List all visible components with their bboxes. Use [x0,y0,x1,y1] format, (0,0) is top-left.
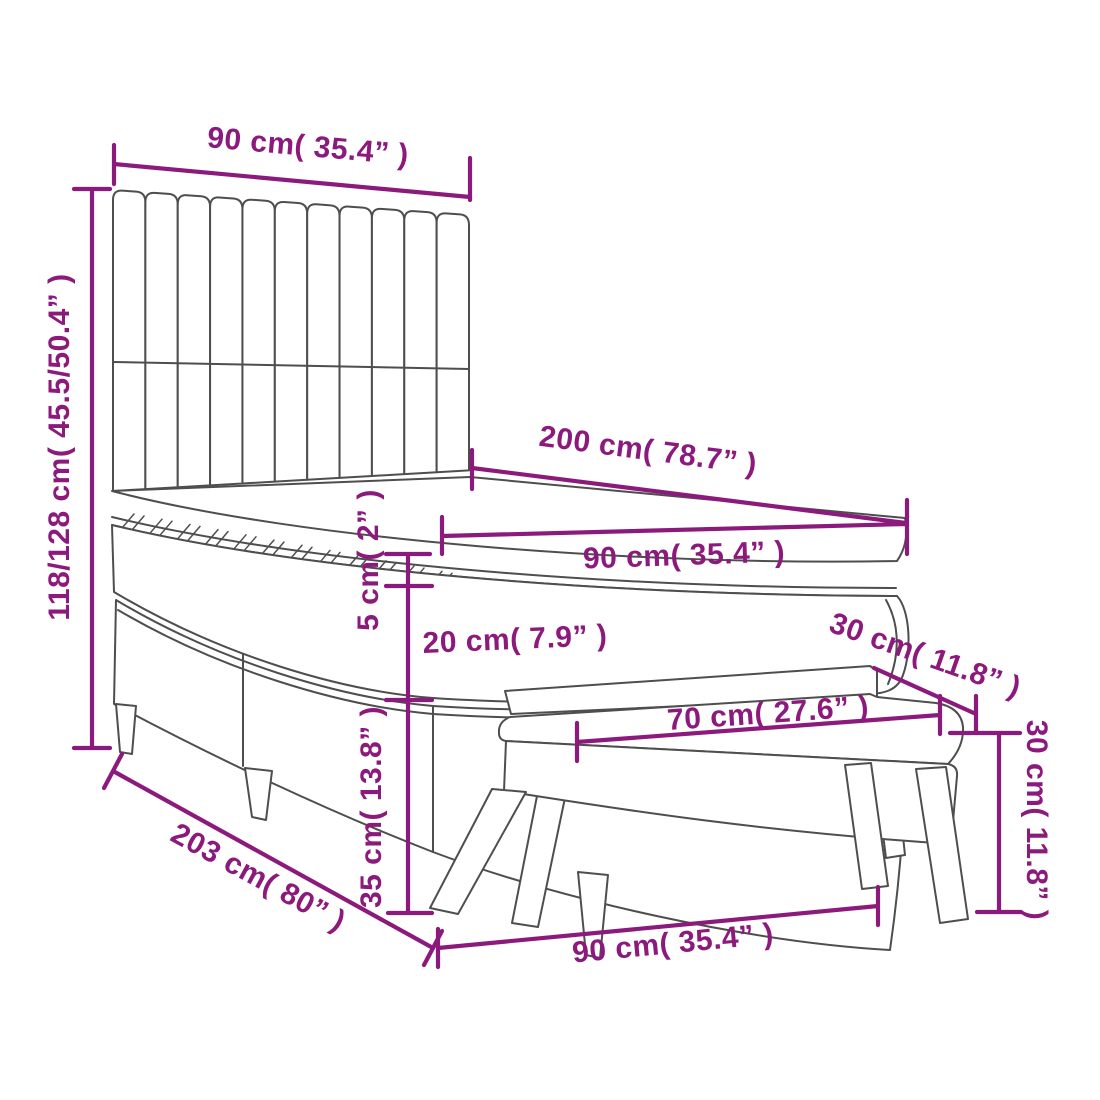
headboard-slat [404,211,436,474]
dim-label-base-height: 35 cm( 13.8” ) [355,706,389,908]
headboard-slat [210,197,242,485]
headboard-slat [340,207,372,478]
headboard-slat [372,209,404,476]
bed-leg-1 [116,704,136,754]
headboard [113,191,469,491]
headboard-slat [307,204,339,479]
dim-line-bed-height [74,189,110,748]
headboard-slat [275,202,307,482]
dim-label-mattress-width: 90 cm( 35.4” ) [582,535,785,576]
dim-label-topper-thickness: 5 cm( 2” ) [352,489,386,631]
bed-line-art [0,0,1100,1100]
headboard-slat [178,195,210,487]
headboard-slat [113,191,145,491]
headboard-slat [145,193,177,489]
bench-leg-front-right [916,767,968,923]
dim-label-bench-height: 30 cm( 11.8” ) [1019,720,1053,920]
headboard-slat [437,213,469,472]
headboard-slat [242,200,274,484]
dimension-diagram: 90 cm( 35.4” ) 118/128 cm( 45.5/50.4” ) … [0,0,1100,1100]
dim-label-bed-height: 118/128 cm( 45.5/50.4” ) [43,273,77,620]
bed-leg-2 [245,768,272,820]
